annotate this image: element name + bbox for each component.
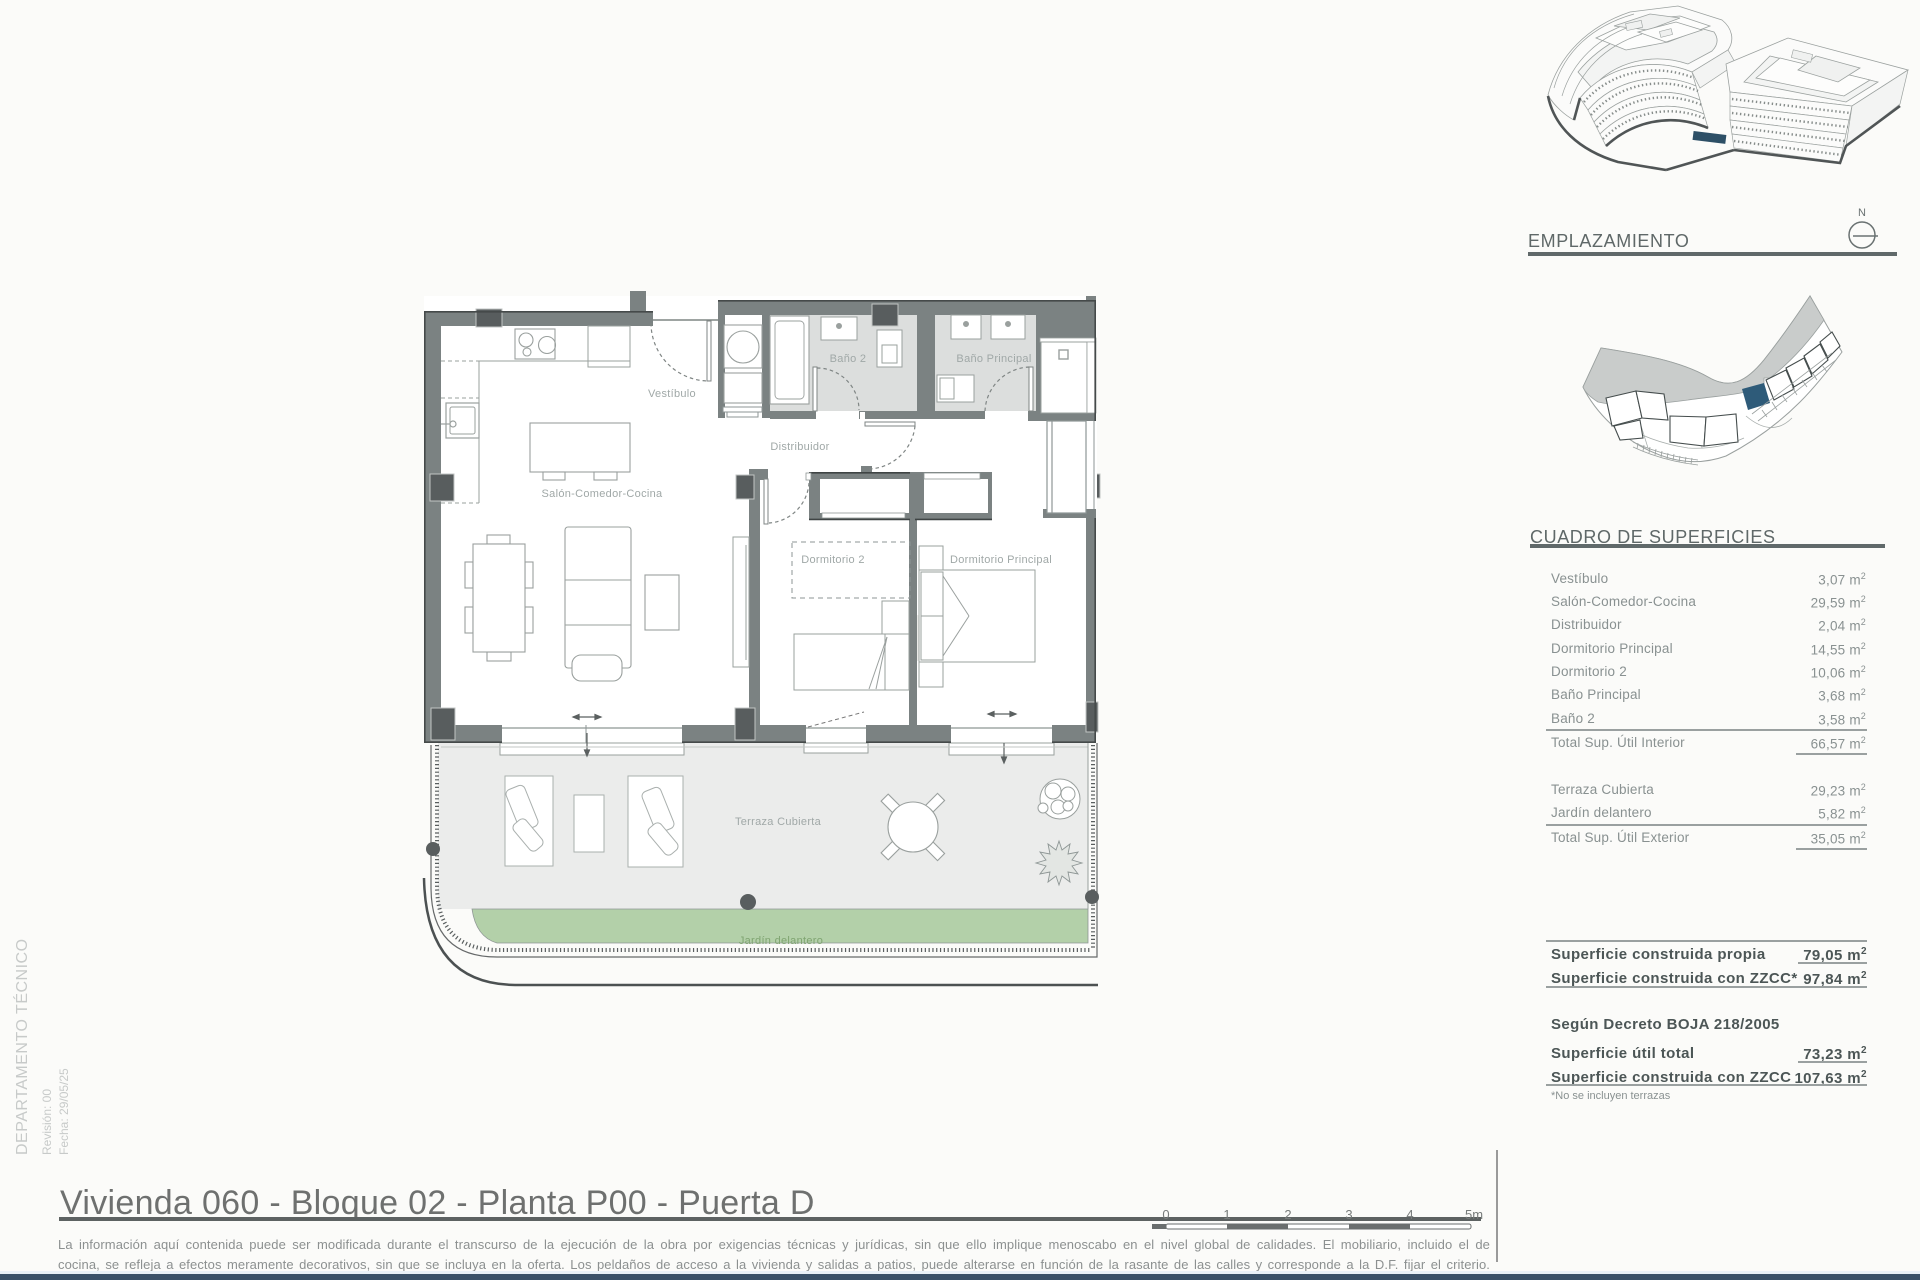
svg-text:N: N	[1858, 207, 1866, 219]
svg-text:1: 1	[1223, 1207, 1230, 1222]
svg-text:5m: 5m	[1465, 1207, 1483, 1222]
svg-text:3: 3	[1345, 1207, 1352, 1222]
svg-text:4: 4	[1406, 1207, 1413, 1222]
svg-text:2: 2	[1284, 1207, 1291, 1222]
svg-text:0: 0	[1162, 1207, 1169, 1222]
